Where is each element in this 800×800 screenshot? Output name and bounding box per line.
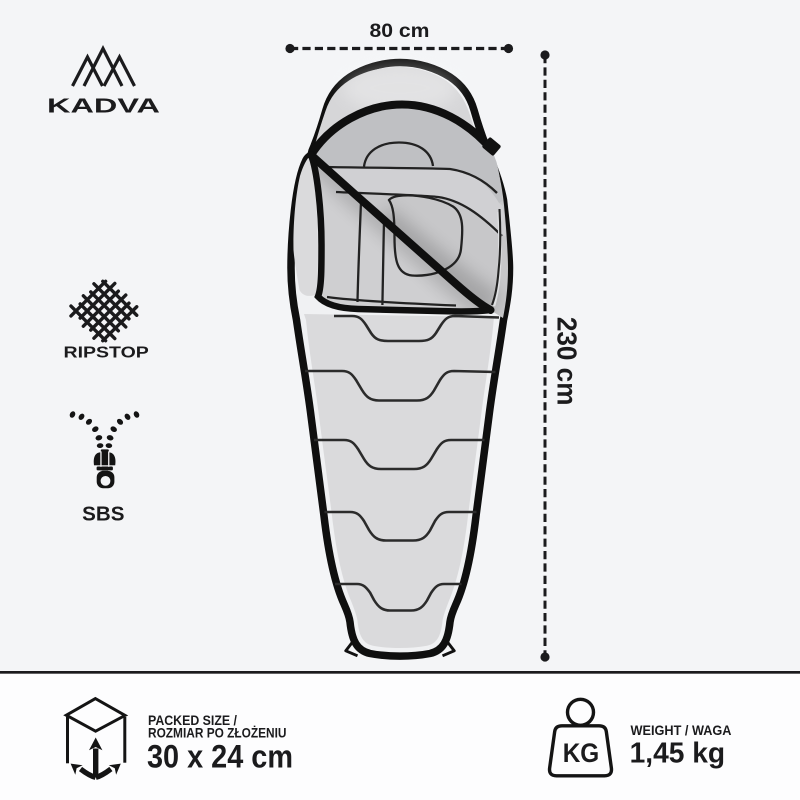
svg-text:KG: KG — [563, 738, 600, 768]
svg-text:230 cm: 230 cm — [552, 317, 583, 406]
svg-text:RIPSTOP: RIPSTOP — [64, 345, 150, 362]
svg-text:SBS: SBS — [82, 502, 124, 525]
svg-text:WEIGHT / WAGA: WEIGHT / WAGA — [631, 723, 732, 738]
svg-text:1,45 kg: 1,45 kg — [630, 738, 726, 770]
svg-text:80 cm: 80 cm — [370, 21, 430, 42]
svg-text:30 x 24 cm: 30 x 24 cm — [147, 739, 293, 775]
svg-text:KADVA: KADVA — [47, 95, 160, 118]
